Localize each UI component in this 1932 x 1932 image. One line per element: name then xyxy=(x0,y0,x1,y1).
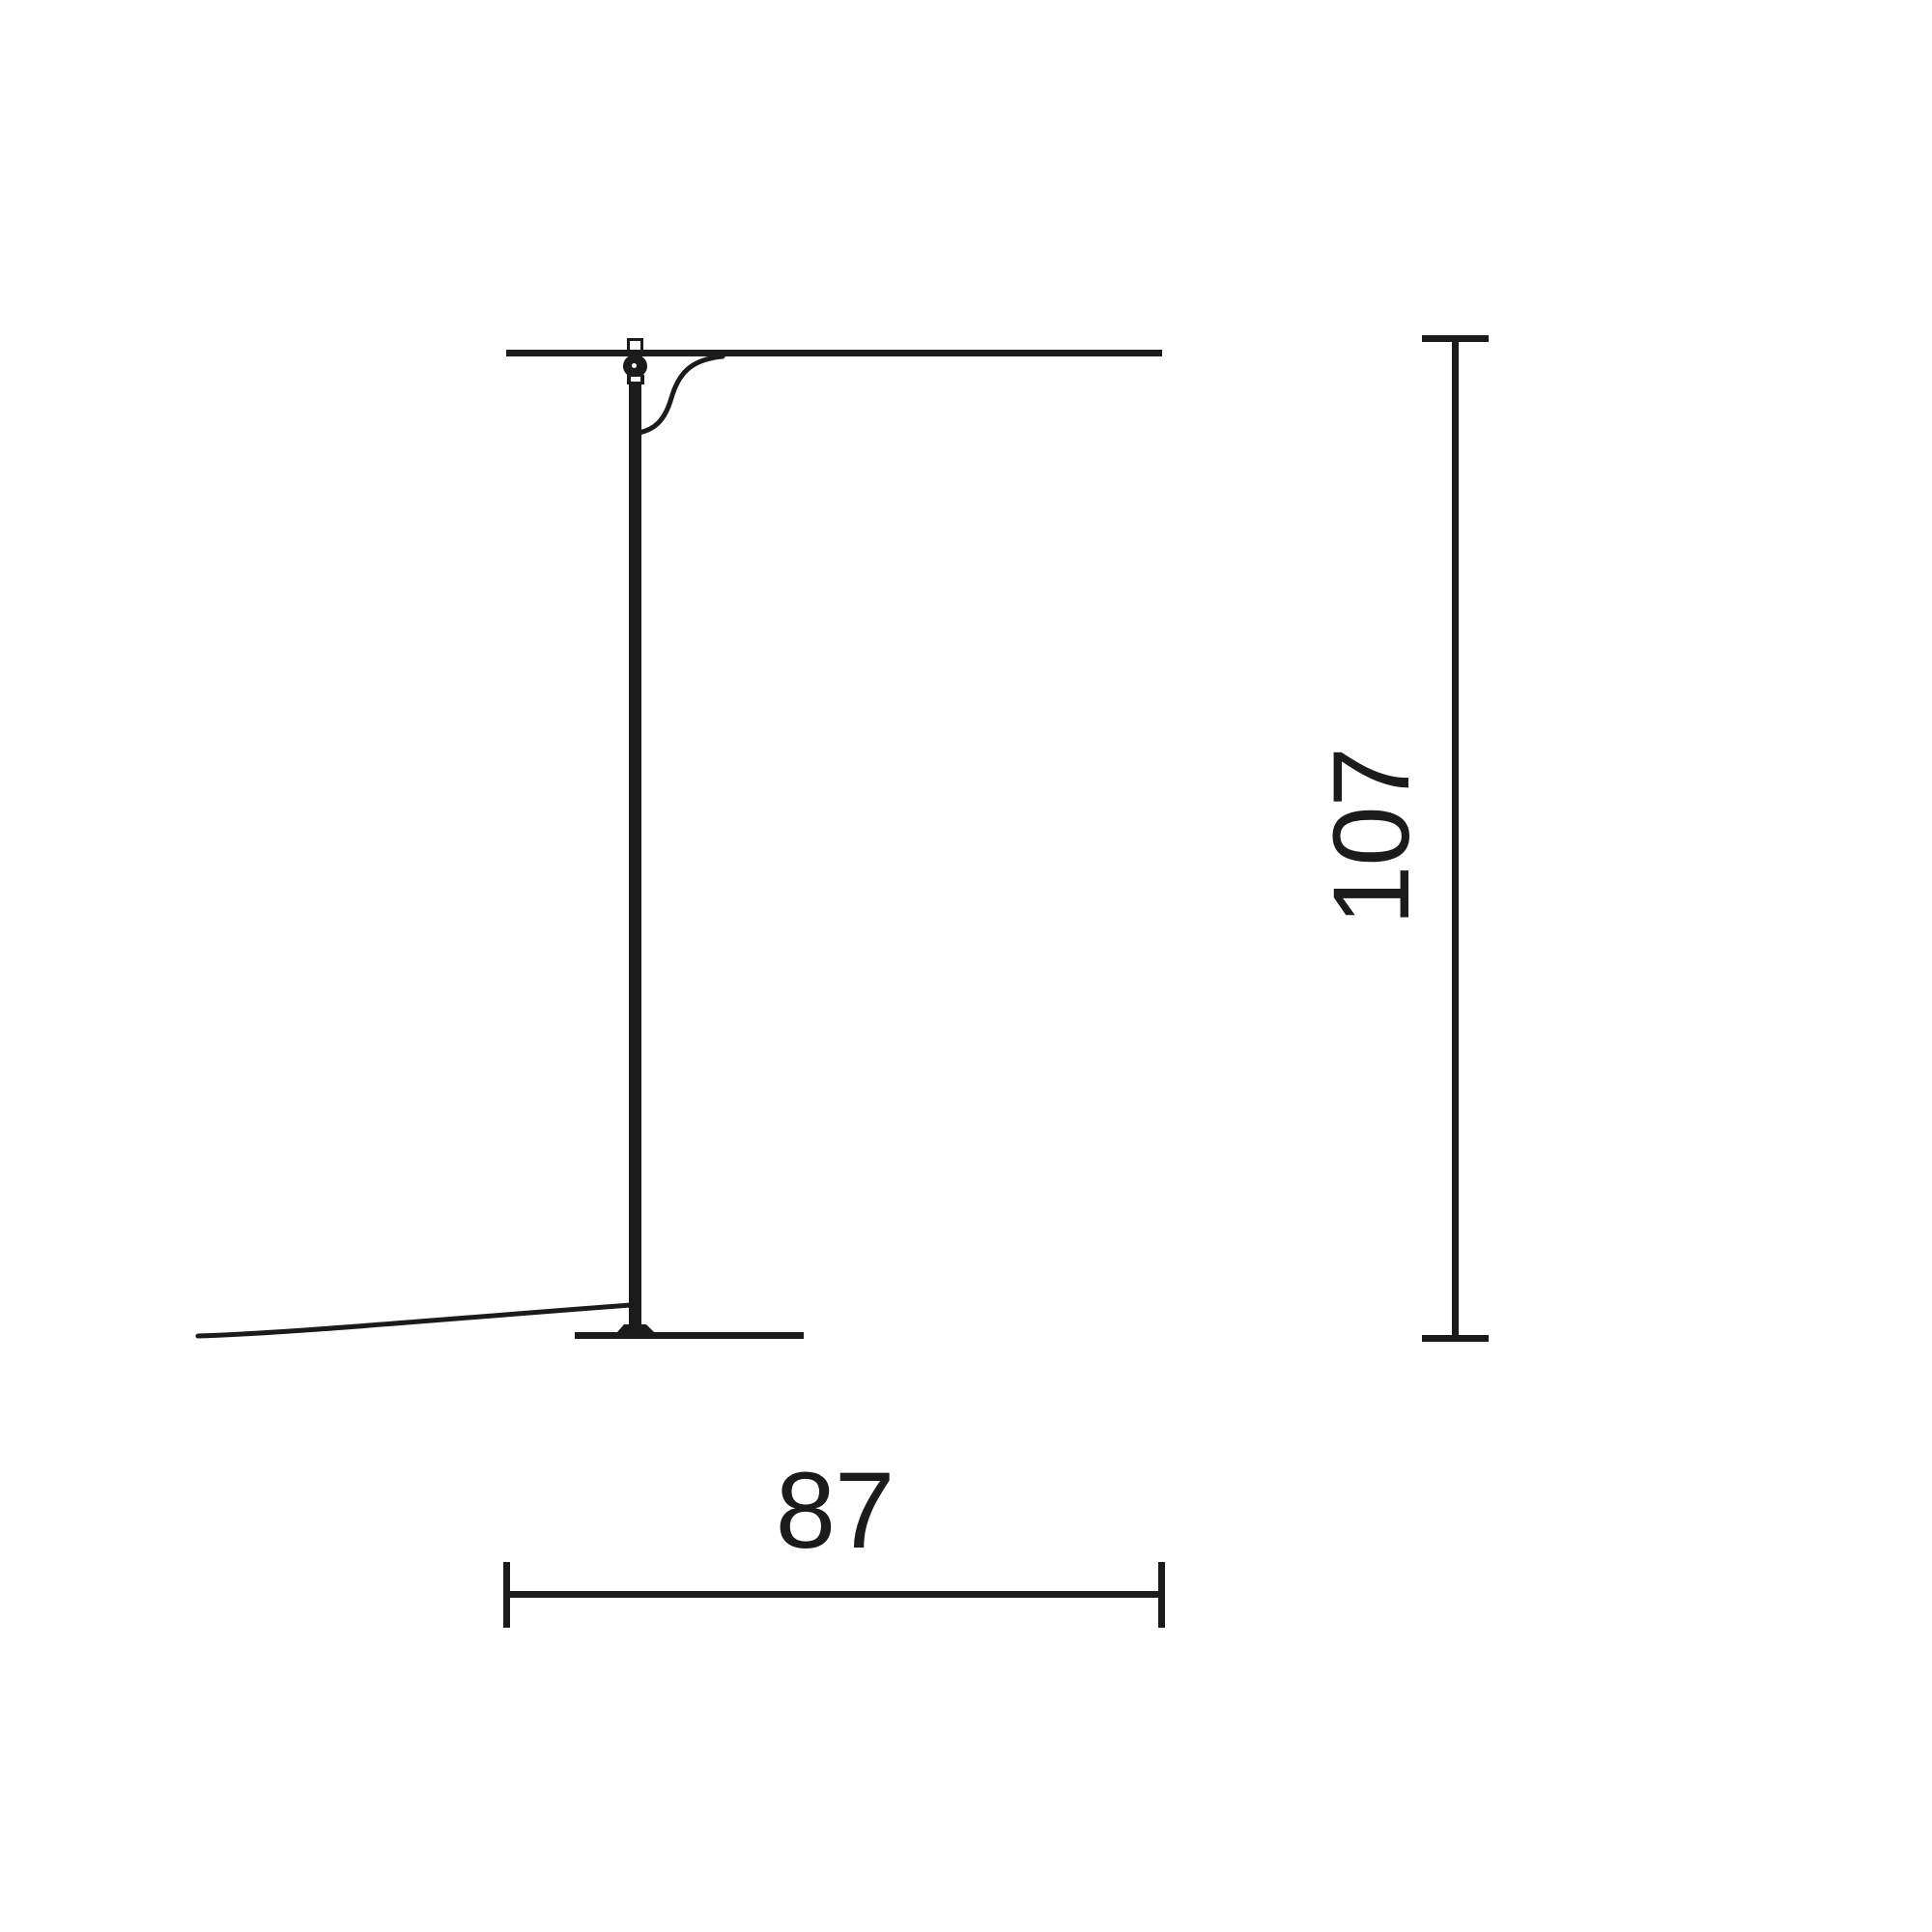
width-dimension-tick-right xyxy=(1158,1562,1165,1628)
height-dimension-tick-bottom xyxy=(1422,1335,1489,1342)
width-dimension-tick-left xyxy=(503,1562,510,1628)
arm-cable xyxy=(639,356,723,433)
lamp-base-plate xyxy=(575,1332,804,1339)
lamp-arm xyxy=(506,350,1162,356)
cable-overlay xyxy=(0,0,1932,1932)
width-dimension-line xyxy=(507,1591,1162,1598)
height-dimension-tick-top xyxy=(1422,335,1489,342)
height-dimension-line xyxy=(1452,338,1459,1339)
knob-highlight-dot xyxy=(632,363,637,368)
joint-clamp-window xyxy=(631,377,640,382)
power-cord xyxy=(198,1305,631,1336)
width-dimension-label: 87 xyxy=(776,1457,895,1565)
dimension-drawing-canvas: 107 87 xyxy=(0,0,1932,1932)
lamp-pole xyxy=(629,383,641,1332)
height-dimension-label: 107 xyxy=(1318,748,1426,925)
